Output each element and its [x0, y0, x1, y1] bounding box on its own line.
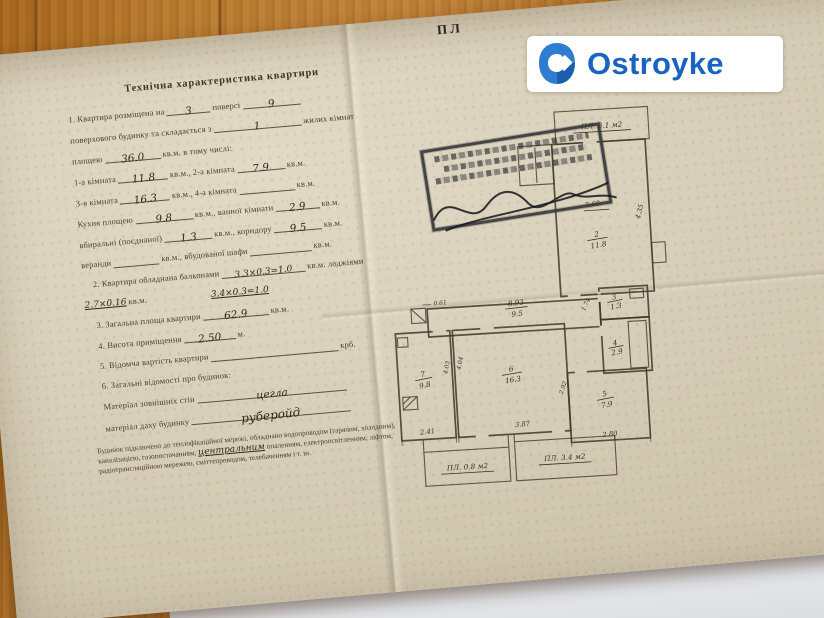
- wc-outline: [599, 285, 649, 319]
- svg-text:5: 5: [601, 389, 608, 399]
- handwritten-value: 3: [185, 105, 193, 118]
- dim-kitchen-bottom: 2.41: [419, 427, 436, 437]
- plan-heading: ПЛ: [436, 20, 463, 38]
- label: 4. Висота приміщення: [98, 335, 182, 351]
- label: кв.м.,: [170, 168, 192, 179]
- field-balcony-calc: 3.3×0.3=1.0: [221, 261, 306, 279]
- room-5-label: 5 7.9: [595, 388, 616, 411]
- label: площею: [72, 155, 103, 167]
- field-ceiling-height: 2.50: [183, 328, 236, 343]
- label: Кухня площею: [77, 216, 133, 230]
- label: кв.м. лоджіями: [307, 257, 364, 271]
- brand-name: Ostroyke: [587, 46, 724, 82]
- photo-scene: ПЛ Технічна характеристика квартири 1. К…: [0, 0, 824, 618]
- label: кв.м.: [270, 304, 289, 315]
- field-floor: 3: [166, 101, 211, 116]
- label: крб.: [340, 340, 356, 350]
- field-room3: 16.3: [119, 189, 170, 204]
- handwritten-value: 2.9: [289, 200, 307, 214]
- field-living-area: 36.0: [104, 148, 161, 164]
- label: кв.м.: [321, 197, 340, 208]
- svg-text:9.8: 9.8: [418, 379, 431, 390]
- document-sheet: ПЛ Технічна характеристика квартири 1. К…: [0, 0, 824, 618]
- handwritten-value: 2.50: [197, 331, 222, 346]
- label: 1. Квартира розміщена на: [68, 107, 165, 124]
- label: матеріал даху будинку: [105, 417, 189, 433]
- label: 4-а кімната: [194, 185, 237, 198]
- field-storeys: 9: [242, 94, 301, 110]
- label: кв.м.: [323, 218, 342, 229]
- handwritten-value: цегла: [255, 386, 288, 402]
- dim-corridor-small: 0.61: [433, 299, 447, 307]
- wall-niche: [651, 242, 666, 263]
- label: 3-я кімната: [75, 196, 118, 209]
- toilet-fixture: [630, 288, 644, 298]
- room-6-label: 6 16.3: [500, 363, 523, 386]
- handwritten-value: 11.8: [131, 171, 156, 186]
- svg-text:2: 2: [593, 229, 600, 239]
- room-2-label: 2 11.8: [586, 228, 609, 251]
- ostroyke-logo: Ostroyke: [527, 36, 783, 92]
- svg-text:2.9: 2.9: [610, 346, 624, 357]
- dim-wall-b: 4.04: [456, 356, 466, 371]
- handwritten-value: 3.3×0.3=1.0: [234, 263, 293, 281]
- handwritten-value: 9.8: [155, 212, 173, 226]
- svg-text:7: 7: [420, 369, 427, 379]
- label: кв.м., вбудованої шафи: [161, 247, 248, 264]
- svg-text:8.93: 8.93: [507, 297, 524, 308]
- label: вбиральні (поєднаної): [79, 234, 162, 250]
- label: кв.м. в тому числі:: [162, 144, 232, 159]
- label: кв.м.: [286, 158, 305, 169]
- field-cost: [210, 340, 338, 362]
- balcony-bottom-right-label: ПЛ. 3.4 м2: [543, 452, 586, 464]
- svg-text:9.5: 9.5: [511, 309, 524, 319]
- label: кв.м., ванної кімнати: [194, 203, 273, 219]
- sink-fixture: [397, 337, 408, 347]
- bathroom-label: 4 2.9: [607, 337, 626, 358]
- handwritten-value: руберойд: [241, 406, 301, 425]
- label: 1-а кімната: [74, 175, 117, 188]
- balcony-bottom-left-label: ПЛ. 0.8 м2: [446, 461, 489, 473]
- dim-wall-a: 4.03: [442, 360, 452, 375]
- field-room1: 11.8: [117, 168, 168, 183]
- label: кв.м., коридору: [214, 225, 272, 239]
- kitchen-label: 7 9.8: [413, 368, 434, 391]
- handwritten-value: 16.3: [133, 192, 158, 207]
- field-wc: 1.3: [164, 228, 213, 243]
- label: поверсі: [212, 101, 241, 112]
- label: кв.м.: [313, 239, 332, 250]
- svg-text:16.3: 16.3: [504, 374, 522, 386]
- field-total-area: 62.9: [202, 304, 269, 321]
- balcony-top-label: ПЛ. 3.1 м2: [580, 120, 623, 132]
- dim-balcony-top: 2.68: [584, 199, 602, 209]
- svg-text:6: 6: [508, 364, 514, 374]
- brand-icon: [537, 42, 577, 86]
- handwritten-value: 3.4×0.3=1.0: [211, 285, 270, 300]
- svg-text:7.9: 7.9: [600, 399, 613, 410]
- field-rooms-count: 1: [213, 115, 302, 134]
- label: веранди: [81, 259, 112, 271]
- dim-room5-bottom: 2.80: [601, 429, 619, 439]
- label: 2-а кімната: [192, 165, 235, 178]
- handwritten-value: 36.0: [120, 151, 145, 166]
- label: поверхового будинку та складається з: [70, 124, 212, 145]
- svg-text:11.8: 11.8: [590, 239, 608, 251]
- floor-plan: ПЛ. 3.1 м2: [375, 98, 699, 553]
- field-bathroom: 2.9: [275, 197, 320, 212]
- label: кв.м.: [128, 296, 147, 307]
- floor-plan-drawing: ПЛ. 3.1 м2: [375, 98, 699, 553]
- dim-room6-bottom: 3.87: [515, 419, 532, 429]
- label: Матеріал зовнішніх стін: [103, 395, 195, 412]
- technical-form: Технічна характеристика квартири 1. Квар…: [66, 62, 411, 484]
- handwritten-value: 9: [267, 98, 275, 111]
- field-veranda: [113, 253, 160, 268]
- label: 6. Загальні відомості про будинок:: [101, 371, 231, 391]
- label: м.: [237, 329, 246, 339]
- corridor-label: 8.93 9.5: [504, 297, 528, 319]
- field-corridor: 9.5: [273, 218, 322, 233]
- label: кв.м.,: [172, 189, 194, 200]
- handwritten-value: 7.9: [252, 161, 270, 175]
- handwritten-value: 2.7×0.16: [84, 297, 127, 311]
- field-closet: [249, 240, 312, 256]
- handwritten-value: 1: [253, 120, 261, 133]
- field-room4: [238, 179, 295, 195]
- dim-room2-side: 4.35: [634, 203, 646, 221]
- field-kitchen: 9.8: [134, 208, 193, 224]
- label: кв.м.: [296, 179, 315, 190]
- svg-text:1.3: 1.3: [609, 300, 622, 311]
- label: 5. Відомча вартість квартири: [100, 352, 209, 370]
- handwritten-value: 62.9: [224, 308, 249, 323]
- bathtub-fixture: [628, 320, 649, 368]
- field-room2: 7.9: [236, 158, 285, 173]
- handwritten-value: 1.3: [179, 231, 197, 245]
- handwritten-value: 9.5: [289, 221, 307, 235]
- label: жилих кімнат: [303, 112, 355, 125]
- label: 3. Загальна площа квартири: [96, 312, 201, 330]
- label: 2. Квартира обладнана балконами: [93, 269, 220, 289]
- dim-room5-side: 2.92: [558, 380, 569, 396]
- bathroom-outline: [601, 317, 653, 373]
- field-wall-material: цегла: [196, 380, 346, 404]
